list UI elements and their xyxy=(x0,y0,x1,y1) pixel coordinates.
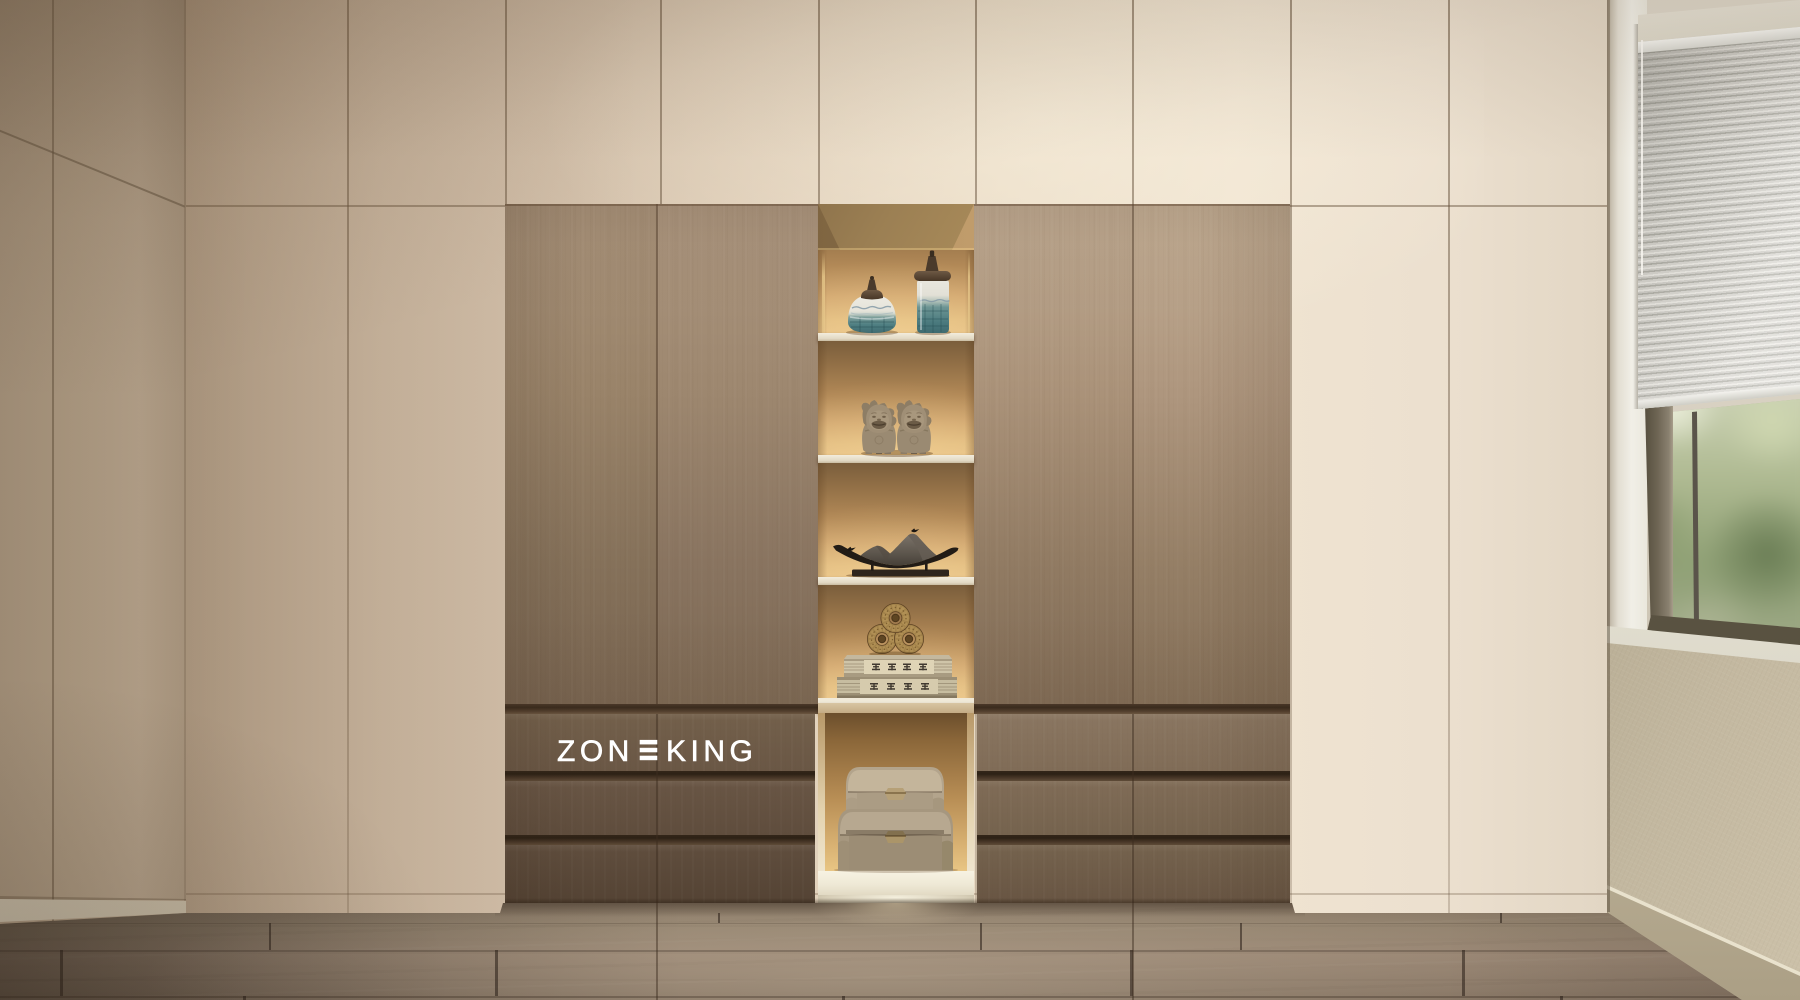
svg-text:KING: KING xyxy=(666,735,757,768)
svg-text:ZON: ZON xyxy=(557,735,634,768)
